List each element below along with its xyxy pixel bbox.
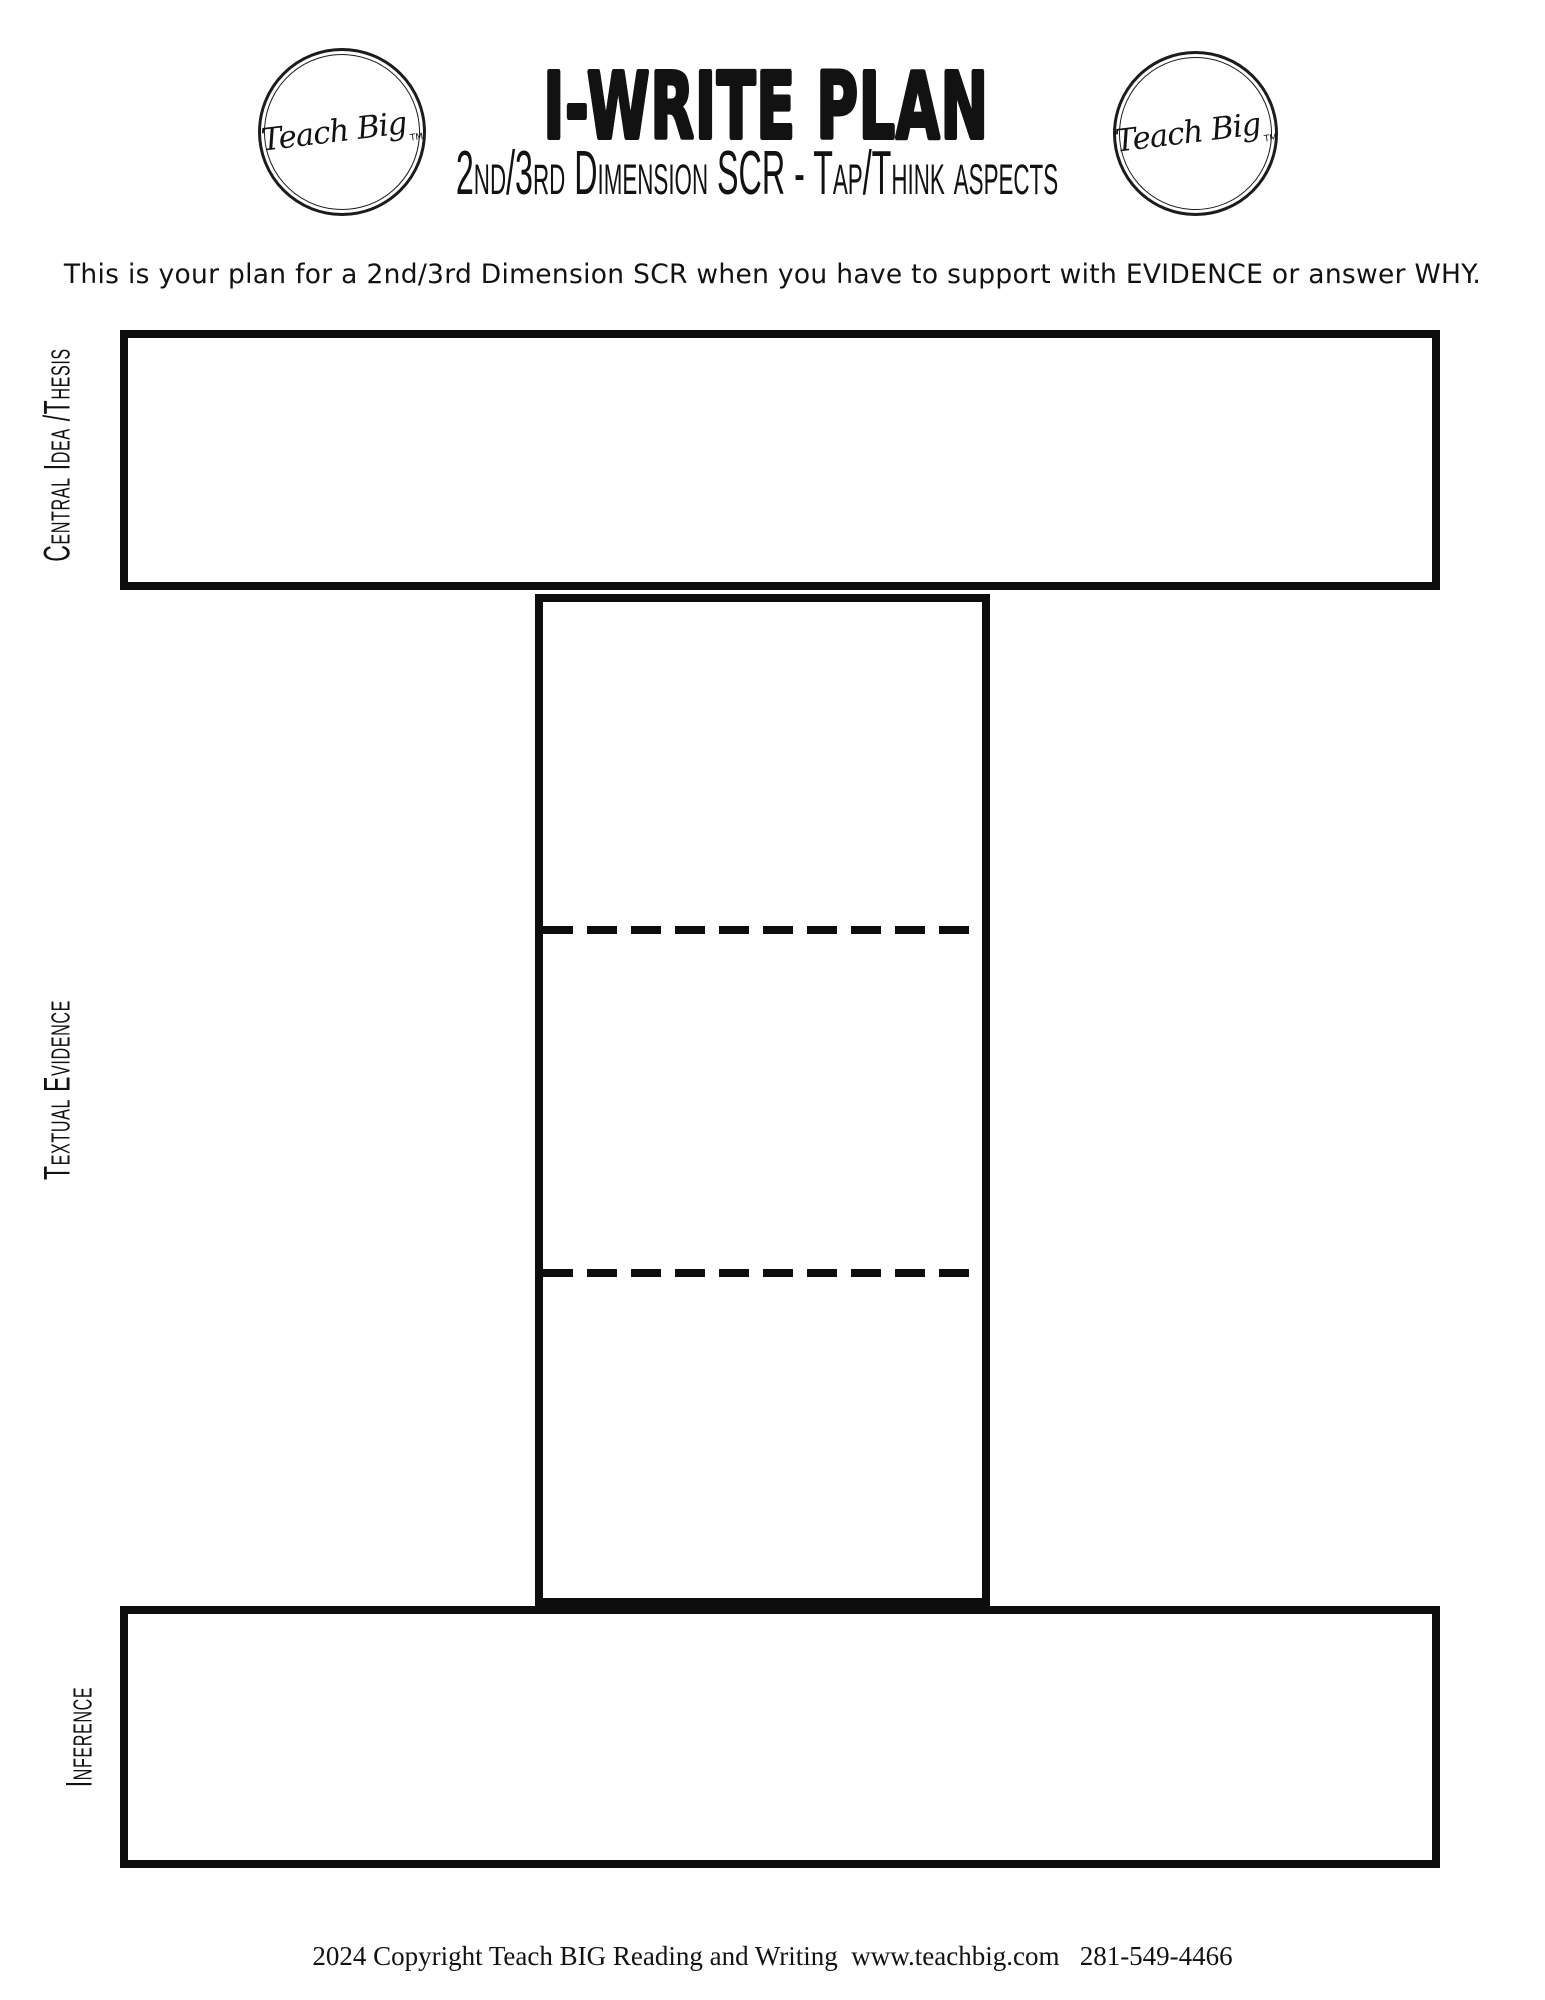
evidence-divider-2	[543, 1269, 982, 1277]
label-inference: Inference	[61, 1687, 98, 1788]
intro-text: This is your plan for a 2nd/3rd Dimensio…	[0, 259, 1545, 291]
inference-box[interactable]	[120, 1606, 1440, 1868]
footer-text: 2024 Copyright Teach BIG Reading and Wri…	[0, 1941, 1545, 1972]
page-subtitle: 2nd/3rd Dimension SCR - Tap/Think aspect…	[178, 143, 1336, 205]
evidence-divider-1	[543, 926, 982, 934]
label-central-idea: Central Idea /Thesis	[39, 348, 76, 562]
label-textual-evidence: Textual Evidence	[39, 1000, 76, 1180]
central-idea-box[interactable]	[120, 330, 1440, 590]
textual-evidence-box[interactable]	[535, 594, 990, 1606]
worksheet-page: Teach BigTM Teach BigTM I-WRITE PLAN 2nd…	[0, 0, 1545, 2000]
